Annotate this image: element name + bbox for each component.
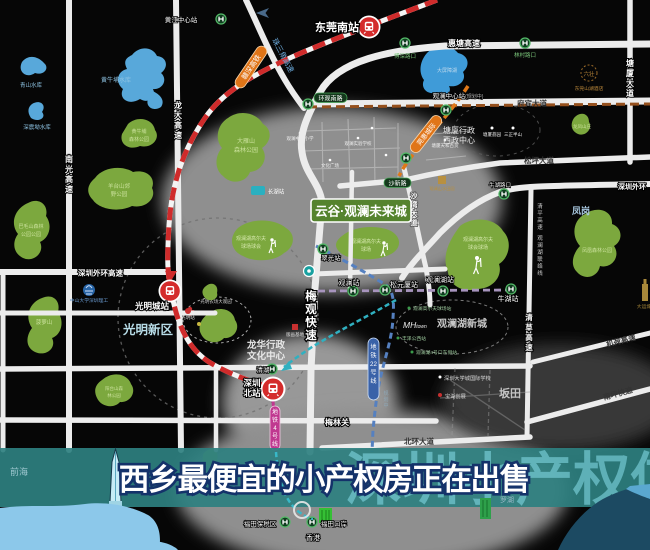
svg-text:沙新路: 沙新路: [388, 180, 406, 188]
svg-text:文化广场: 文化广场: [321, 162, 339, 169]
svg-text:中山大学深圳理工: 中山大学深圳理工: [70, 297, 109, 304]
svg-text:球会球场: 球会球场: [468, 244, 488, 251]
svg-text:菠萝山: 菠萝山: [36, 318, 53, 326]
svg-text:光明农场大观园: 光明农场大观园: [200, 298, 232, 305]
svg-text:观澜湖新城: 观澜湖新城: [437, 317, 487, 330]
svg-text:福田保税区: 福田保税区: [244, 519, 277, 528]
svg-text:观澜高尔夫球场站: 观澜高尔夫球场站: [413, 305, 452, 312]
svg-text:观澜山水田园: 观澜山水田园: [429, 185, 454, 192]
svg-text:云谷·观澜未来城: 云谷·观澜未来城: [315, 204, 407, 219]
svg-text:野公园: 野公园: [111, 190, 128, 198]
svg-text:福田口岸: 福田口岸: [321, 519, 348, 528]
svg-text:翠光站: 翠光站: [321, 253, 341, 262]
svg-text:香港: 香港: [306, 533, 320, 542]
svg-text:清平高速观澜湖联络线: 清平高速观澜湖联络线: [537, 202, 543, 277]
svg-text:羊台山郊: 羊台山郊: [108, 182, 131, 190]
svg-text:长湖站: 长湖站: [268, 188, 285, 196]
svg-text:观澜实验学校: 观澜实验学校: [345, 140, 372, 147]
svg-text:青山水库: 青山水库: [20, 81, 43, 89]
svg-text:大雁山: 大雁山: [237, 137, 255, 145]
svg-text:坂田: 坂田: [499, 386, 521, 400]
svg-text:凤岗: 凤岗: [572, 205, 590, 216]
svg-text:版画基地: 版画基地: [286, 331, 304, 338]
svg-text:黄江中心站: 黄江中心站: [165, 15, 198, 24]
svg-text:观澜湖高尔夫: 观澜湖高尔夫: [463, 236, 493, 243]
svg-text:环观南路: 环观南路: [318, 95, 342, 103]
svg-text:林公园: 林公园: [107, 392, 121, 399]
svg-text:牛湖站: 牛湖站: [498, 294, 519, 303]
svg-text:深圳外环: 深圳外环: [618, 182, 646, 191]
svg-text:龙凤山庄: 龙凤山庄: [573, 123, 591, 130]
svg-text:宝湖创展: 宝湖创展: [445, 392, 466, 400]
svg-text:梅观快速: 梅观快速: [304, 289, 317, 342]
svg-text:东莞山湖酒店: 东莞山湖酒店: [575, 85, 604, 92]
svg-text:观澜湖4号口东侧站: 观澜湖4号口东侧站: [416, 349, 457, 356]
svg-text:大运城: 大运城: [637, 303, 650, 310]
svg-text:林村路口: 林村路口: [514, 51, 536, 59]
svg-text:松元厦站: 松元厦站: [390, 280, 418, 289]
svg-text:球场: 球场: [361, 246, 371, 253]
svg-text:观澜湖站: 观澜湖站: [426, 275, 454, 284]
svg-text:北环大道: 北环大道: [404, 436, 434, 446]
svg-text:丰泽公西站: 丰泽公西站: [402, 335, 426, 342]
svg-text:深圳大学城国际学校: 深圳大学城国际学校: [444, 374, 491, 382]
svg-text:东莞南站: 东莞南站: [315, 20, 359, 34]
svg-text:黄牛埔: 黄牛埔: [131, 128, 146, 135]
svg-text:球场球会: 球场球会: [241, 243, 261, 250]
svg-text:大屏障湖: 大屏障湖: [437, 67, 457, 74]
svg-text:牛湖路口: 牛湖路口: [489, 181, 511, 189]
svg-text:府宾大道: 府宾大道: [517, 98, 547, 108]
svg-text:公园公园: 公园公园: [21, 232, 41, 238]
svg-text:地铁22号线: 地铁22号线: [370, 343, 377, 385]
svg-text:森林公园: 森林公园: [234, 146, 258, 154]
svg-text:博深路口: 博深路口: [394, 52, 416, 60]
svg-text:深圳北站: 深圳北站: [243, 378, 261, 398]
svg-text:清湖: 清湖: [257, 365, 271, 374]
svg-text:森林公园: 森林公园: [129, 136, 149, 143]
svg-text:深震坳水库: 深震坳水库: [23, 123, 51, 131]
svg-text:前海: 前海: [10, 466, 28, 477]
svg-text:塘厦荔园: 塘厦荔园: [483, 131, 501, 138]
svg-text:龙华行政文化中心: 龙华行政文化中心: [246, 339, 286, 362]
svg-text:观澜站: 观澜站: [339, 278, 360, 287]
svg-text:六壮: 六壮: [583, 70, 595, 78]
svg-text:西乡最便宜的小产权房正在出售: 西乡最便宜的小产权房正在出售: [119, 463, 529, 497]
svg-text:凤凰森林公园: 凤凰森林公园: [582, 247, 612, 254]
svg-text:惠塘高速: 惠塘高速: [448, 38, 480, 48]
svg-text:松坪大道: 松坪大道: [524, 155, 554, 165]
svg-text:黄牛埔水库: 黄牛埔水库: [101, 76, 131, 84]
svg-text:观澜湖高尔夫: 观澜湖高尔夫: [351, 238, 381, 245]
svg-text:光明城站: 光明城站: [134, 301, 170, 311]
svg-text:三正半山: 三正半山: [504, 131, 522, 138]
svg-text:光明新区: 光明新区: [122, 322, 174, 337]
svg-text:深圳外环高速: 深圳外环高速: [78, 268, 123, 278]
svg-text:巴毛山森林: 巴毛山森林: [18, 223, 43, 230]
svg-text:阳台山森: 阳台山森: [105, 385, 123, 392]
svg-text:观澜湖高尔夫: 观澜湖高尔夫: [236, 235, 266, 242]
svg-text:光明站: 光明站: [181, 314, 195, 321]
svg-text:规划中: 规划中: [383, 390, 388, 409]
svg-text:梅林关: 梅林关: [325, 417, 349, 427]
